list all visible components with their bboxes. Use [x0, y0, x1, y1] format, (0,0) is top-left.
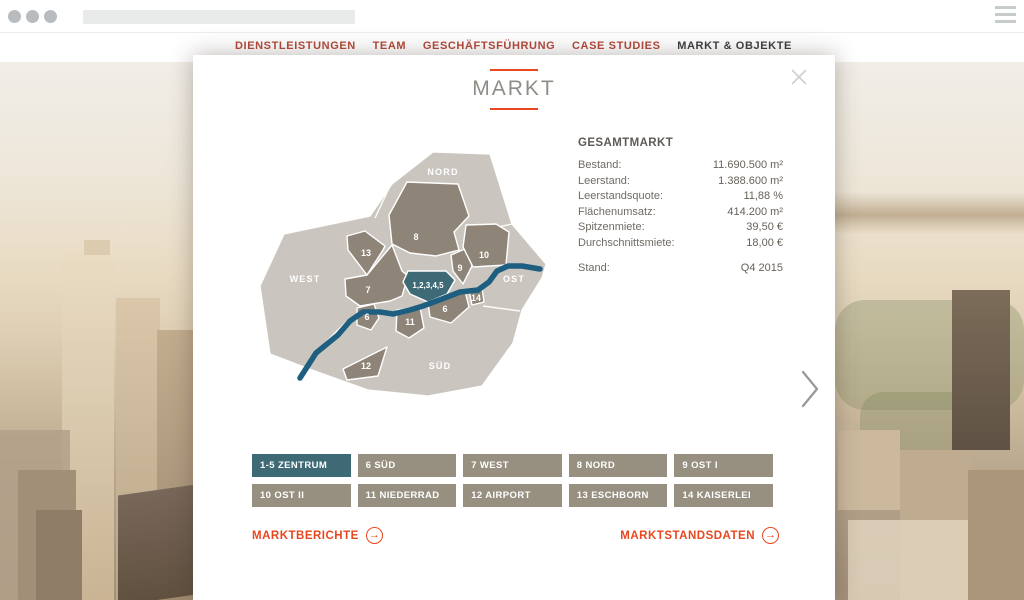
frankfurt-district-map: NORD WEST OST SÜD 8 13 7 1,2,3,4,5 9 10 …: [250, 138, 550, 400]
map-label-sued: SÜD: [429, 361, 452, 371]
district-button-1-5-zentrum[interactable]: 1-5 ZENTRUM: [252, 454, 351, 477]
nav-item-team[interactable]: TEAM: [373, 40, 407, 52]
map-num-11: 11: [405, 317, 415, 327]
stat-row-leerstand: Leerstand: 1.388.600 m²: [578, 174, 783, 190]
window-button-icon[interactable]: [44, 10, 57, 23]
marktberichte-link[interactable]: MARKTBERICHTE →: [252, 527, 383, 544]
page: DIENSTLEISTUNGEN TEAM GESCHÄFTSFÜHRUNG C…: [0, 0, 1024, 600]
map-num-zentrum: 1,2,3,4,5: [412, 281, 444, 290]
markt-modal: MARKT: [193, 55, 835, 600]
map-num-12: 12: [361, 361, 371, 371]
nav-item-case-studies[interactable]: CASE STUDIES: [572, 40, 661, 52]
district-button-14-kaiserlei[interactable]: 14 KAISERLEI: [674, 484, 773, 507]
map-district-8[interactable]: [389, 182, 469, 256]
window-button-icon[interactable]: [26, 10, 39, 23]
district-button-7-west[interactable]: 7 WEST: [463, 454, 562, 477]
stat-row-bestand: Bestand: 11.690.500 m²: [578, 158, 783, 174]
stat-row-stand: Stand: Q4 2015: [578, 261, 783, 277]
district-button-9-ost-i[interactable]: 9 OST I: [674, 454, 773, 477]
background-hills: [835, 192, 1024, 234]
nav-item-geschaeftsfuehrung[interactable]: GESCHÄFTSFÜHRUNG: [423, 40, 555, 52]
page-title: MARKT: [193, 77, 835, 101]
map-num-7: 7: [365, 285, 370, 295]
gesamtmarkt-panel: GESAMTMARKT Bestand: 11.690.500 m² Leers…: [578, 137, 783, 276]
district-button-6-sued[interactable]: 6 SÜD: [358, 454, 457, 477]
district-button-grid: 1-5 ZENTRUM 6 SÜD 7 WEST 8 NORD 9 OST I …: [252, 454, 773, 507]
window-buttons: [8, 10, 57, 23]
stat-row-leerstandsquote: Leerstandsquote: 11,88 %: [578, 189, 783, 205]
next-chevron-icon[interactable]: [798, 368, 822, 410]
title-rule-bottom: [490, 108, 538, 110]
stat-row-durchschnittsmiete: Durchschnittsmiete: 18,00 €: [578, 236, 783, 252]
nav-item-dienstleistungen[interactable]: DIENSTLEISTUNGEN: [235, 40, 356, 52]
hamburger-menu-icon[interactable]: [995, 6, 1016, 26]
stat-row-flaechenumsatz: Flächenumsatz: 414.200 m²: [578, 205, 783, 221]
modal-header: MARKT: [193, 69, 835, 110]
map-district-10[interactable]: [463, 224, 509, 267]
district-button-12-airport[interactable]: 12 AIRPORT: [463, 484, 562, 507]
map-num-13: 13: [361, 248, 371, 258]
stats-heading: GESAMTMARKT: [578, 137, 783, 149]
links-row: MARKTBERICHTE → MARKTSTANDSDATEN →: [252, 527, 779, 544]
district-button-8-nord[interactable]: 8 NORD: [569, 454, 668, 477]
map-num-14: 14: [471, 293, 481, 303]
window-button-icon[interactable]: [8, 10, 21, 23]
map-label-nord: NORD: [427, 167, 458, 177]
title-rule-top: [490, 69, 538, 71]
district-button-13-eschborn[interactable]: 13 ESCHBORN: [569, 484, 668, 507]
map-num-8: 8: [413, 232, 418, 242]
map-num-6-west: 6: [364, 312, 369, 322]
marktstandsdaten-link[interactable]: MARKTSTANDSDATEN →: [620, 527, 779, 544]
arrow-right-icon: →: [762, 527, 779, 544]
district-button-10-ost-ii[interactable]: 10 OST II: [252, 484, 351, 507]
map-num-10: 10: [479, 250, 489, 260]
arrow-right-icon: →: [366, 527, 383, 544]
stat-row-spitzenmiete: Spitzenmiete: 39,50 €: [578, 220, 783, 236]
map-num-6-sued: 6: [442, 304, 447, 314]
map-num-9: 9: [457, 263, 462, 273]
map-label-ost: OST: [503, 274, 525, 284]
browser-chrome: [0, 0, 1024, 33]
nav-item-markt-objekte[interactable]: MARKT & OBJEKTE: [677, 40, 792, 52]
district-button-11-niederrad[interactable]: 11 NIEDERRAD: [358, 484, 457, 507]
address-bar[interactable]: [83, 10, 355, 24]
map-label-west: WEST: [290, 274, 321, 284]
